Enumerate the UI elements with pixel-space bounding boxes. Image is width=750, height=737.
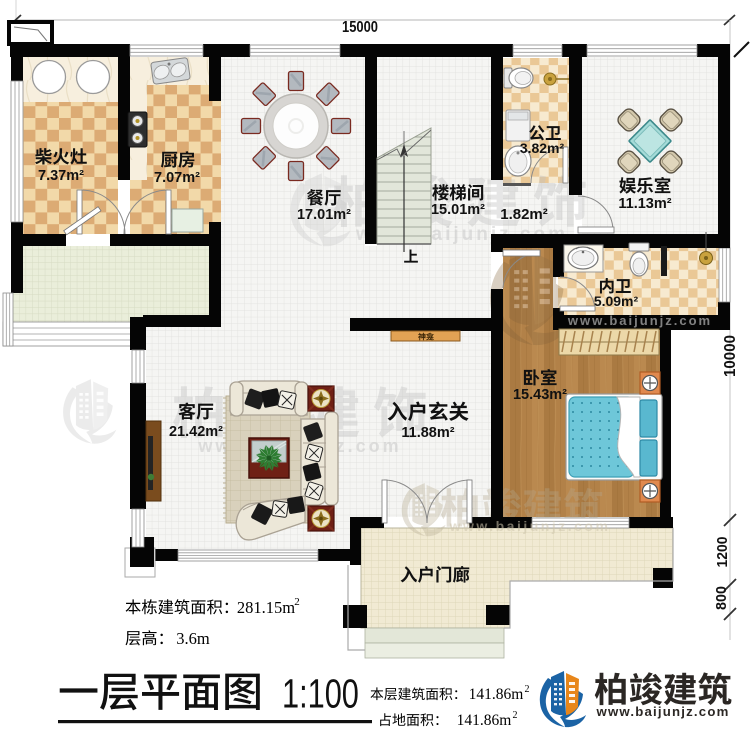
- svg-text:15.43m²: 15.43m²: [513, 387, 567, 403]
- svg-text:1200: 1200: [715, 537, 731, 568]
- svg-text:141.86m: 141.86m: [457, 712, 512, 729]
- svg-text:800: 800: [714, 586, 730, 610]
- svg-text:1.82m²: 1.82m²: [500, 206, 548, 223]
- svg-text:2: 2: [513, 710, 518, 721]
- svg-text:21.42m²: 21.42m²: [169, 424, 223, 440]
- svg-text:www.baijunjz.com: www.baijunjz.com: [567, 313, 712, 328]
- svg-text:11.88m²: 11.88m²: [401, 425, 454, 441]
- svg-text:www.baijunjz.com: www.baijunjz.com: [449, 518, 611, 534]
- svg-text:2: 2: [294, 596, 300, 608]
- svg-text:3.6m: 3.6m: [176, 629, 210, 648]
- svg-text:2: 2: [525, 684, 530, 695]
- svg-text:5.09m²: 5.09m²: [594, 293, 639, 309]
- svg-text:1:100: 1:100: [282, 670, 359, 716]
- svg-text:7.37m²: 7.37m²: [38, 168, 84, 184]
- svg-text:www.baijunjz.com: www.baijunjz.com: [595, 704, 729, 719]
- svg-text:15000: 15000: [342, 19, 378, 36]
- svg-text:10000: 10000: [722, 335, 739, 377]
- svg-text:281.15m: 281.15m: [237, 598, 295, 617]
- svg-text:3.82m²: 3.82m²: [520, 140, 565, 156]
- svg-text:11.13m²: 11.13m²: [618, 196, 671, 212]
- svg-text:7.07m²: 7.07m²: [154, 170, 200, 186]
- svg-text:141.86m: 141.86m: [469, 686, 524, 703]
- svg-text:17.01m²: 17.01m²: [297, 207, 351, 223]
- svg-text:15.01m²: 15.01m²: [431, 202, 485, 218]
